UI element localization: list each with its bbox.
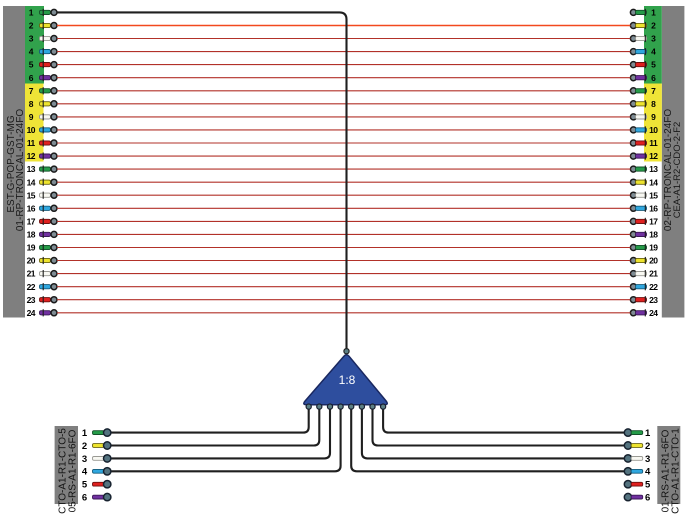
svg-text:1:8: 1:8 xyxy=(339,373,356,387)
svg-text:11: 11 xyxy=(649,138,658,148)
svg-text:CEA-A1-R2-CDO-2-F2: CEA-A1-R2-CDO-2-F2 xyxy=(672,122,683,219)
svg-text:24: 24 xyxy=(27,308,36,318)
svg-text:21: 21 xyxy=(649,269,658,279)
svg-text:14: 14 xyxy=(27,177,36,187)
svg-text:3: 3 xyxy=(645,454,650,465)
svg-text:17: 17 xyxy=(649,217,658,227)
svg-text:5: 5 xyxy=(82,480,88,491)
svg-text:24: 24 xyxy=(649,308,658,318)
svg-text:19: 19 xyxy=(27,243,36,253)
svg-text:14: 14 xyxy=(649,177,658,187)
svg-text:20: 20 xyxy=(649,256,658,266)
svg-text:18: 18 xyxy=(27,230,36,240)
svg-text:23: 23 xyxy=(27,295,36,305)
svg-text:23: 23 xyxy=(649,295,658,305)
svg-text:22: 22 xyxy=(649,282,658,292)
svg-text:4: 4 xyxy=(645,467,651,478)
svg-text:22: 22 xyxy=(27,282,36,292)
svg-text:01-RP-TRONCAL-01-24FO: 01-RP-TRONCAL-01-24FO xyxy=(15,109,26,231)
svg-text:4: 4 xyxy=(82,467,88,478)
svg-text:21: 21 xyxy=(27,269,36,279)
svg-text:12: 12 xyxy=(27,151,36,161)
svg-text:10: 10 xyxy=(649,125,658,135)
svg-text:13: 13 xyxy=(649,164,658,174)
svg-text:16: 16 xyxy=(649,203,658,213)
svg-text:05-RS-A1-R1-6FO: 05-RS-A1-R1-6FO xyxy=(68,429,79,512)
svg-text:19: 19 xyxy=(649,243,658,253)
svg-text:12: 12 xyxy=(649,151,658,161)
svg-text:17: 17 xyxy=(27,217,36,227)
svg-text:15: 15 xyxy=(27,190,36,200)
svg-text:1: 1 xyxy=(645,428,651,439)
svg-text:2: 2 xyxy=(82,441,87,452)
svg-text:3: 3 xyxy=(82,454,87,465)
svg-text:10: 10 xyxy=(27,125,36,135)
svg-text:15: 15 xyxy=(649,190,658,200)
svg-text:5: 5 xyxy=(645,480,651,491)
svg-text:20: 20 xyxy=(27,256,36,266)
svg-text:11: 11 xyxy=(27,138,36,148)
svg-text:2: 2 xyxy=(645,441,650,452)
svg-text:1: 1 xyxy=(82,428,88,439)
svg-text:13: 13 xyxy=(27,164,36,174)
svg-text:16: 16 xyxy=(27,203,36,213)
svg-text:6: 6 xyxy=(645,493,650,504)
svg-text:CTO-A1-R1-CTO-1: CTO-A1-R1-CTO-1 xyxy=(671,428,682,514)
svg-text:6: 6 xyxy=(82,493,87,504)
svg-text:18: 18 xyxy=(649,230,658,240)
